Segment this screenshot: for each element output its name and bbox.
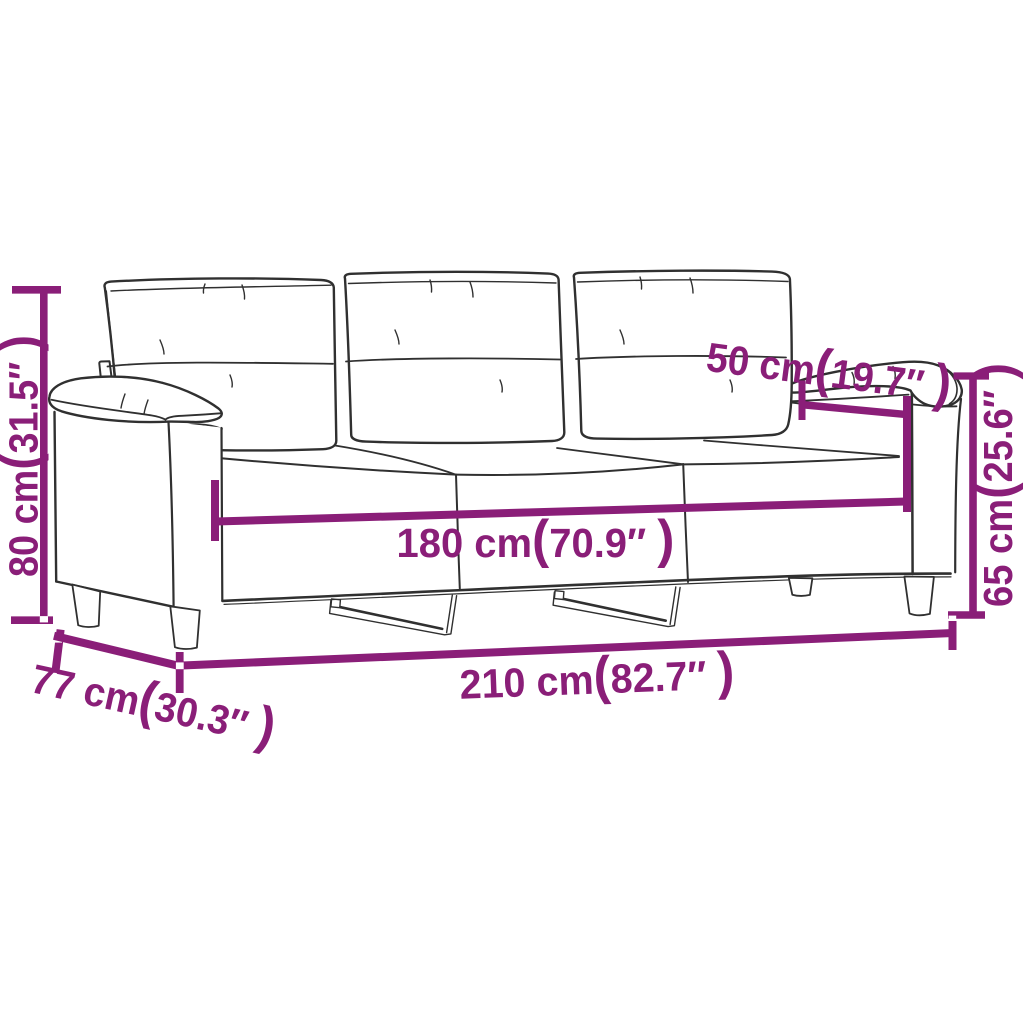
svg-text:80 cm(31.5″ ): 80 cm(31.5″ ) [0,335,50,577]
